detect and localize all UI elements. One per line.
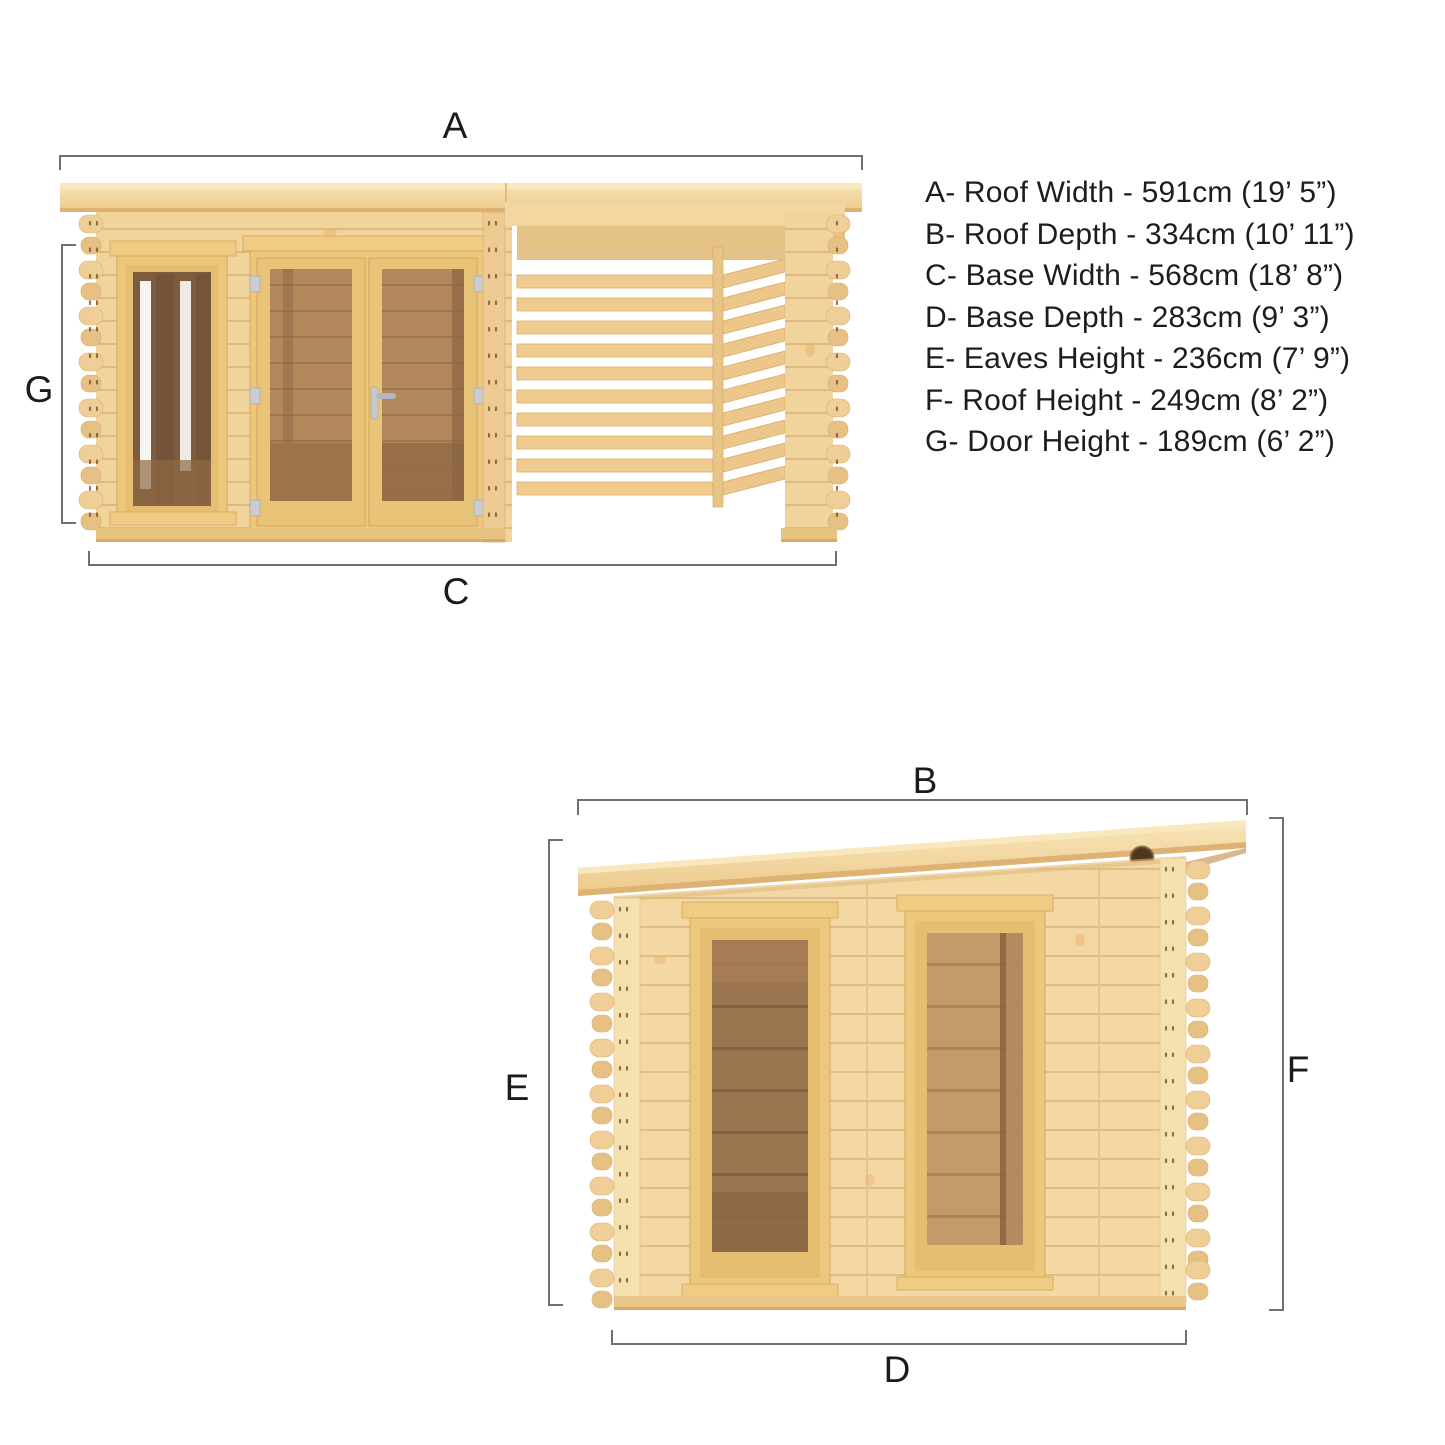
front-double-doors <box>243 236 491 533</box>
dim-line-B <box>578 800 1247 815</box>
dim-label-B: B <box>913 760 938 801</box>
front-divider-post <box>483 212 505 542</box>
dimension-diagram: A G C <box>0 0 1445 1445</box>
dim-line-A <box>60 156 862 170</box>
front-window <box>110 241 236 525</box>
legend-line-roof-depth: B- Roof Depth - 334cm (10’ 11”) <box>925 214 1355 256</box>
side-right-log-ends <box>1160 858 1210 1302</box>
dim-line-E <box>549 840 563 1305</box>
front-window-reflection <box>140 281 151 489</box>
front-window-floor-view <box>133 460 211 506</box>
side-elevation-view: B E F D <box>505 760 1310 1390</box>
front-elevation-view: A G C <box>25 105 862 612</box>
dim-label-D: D <box>884 1349 911 1390</box>
dim-label-A: A <box>443 105 468 146</box>
dim-label-G: G <box>25 369 54 410</box>
dim-label-F: F <box>1287 1049 1310 1090</box>
legend-line-base-width: C- Base Width - 568cm (18’ 8”) <box>925 255 1355 297</box>
dim-line-D <box>612 1330 1186 1344</box>
pergola-back-slats <box>517 275 713 495</box>
front-window-reflection <box>180 281 191 471</box>
side-window-1-sill <box>682 1284 838 1297</box>
dim-line-F <box>1269 818 1283 1310</box>
side-window-1 <box>682 902 838 1297</box>
side-window-2 <box>897 895 1053 1290</box>
side-window-2-header <box>897 895 1053 911</box>
dim-label-E: E <box>505 1067 530 1108</box>
side-window-1-header <box>682 902 838 918</box>
side-left-log-ends <box>590 898 640 1308</box>
legend-line-roof-height: F- Roof Height - 249cm (8’ 2”) <box>925 380 1355 422</box>
side-base <box>614 1296 1186 1310</box>
dimensions-legend: A- Roof Width - 591cm (19’ 5”) B- Roof D… <box>925 172 1355 463</box>
pergola-side-slats <box>723 259 785 495</box>
legend-line-roof-width: A- Roof Width - 591cm (19’ 5”) <box>925 172 1355 214</box>
front-door-floor-view <box>382 443 464 501</box>
dim-line-G <box>62 245 76 523</box>
dim-line-C <box>89 551 836 565</box>
legend-line-base-depth: D- Base Depth - 283cm (9’ 3”) <box>925 297 1355 339</box>
front-window-header <box>110 241 236 256</box>
front-door-header <box>243 236 491 251</box>
front-window-sill <box>110 512 236 525</box>
pergola-corner-frame <box>713 247 723 507</box>
front-pergola <box>505 202 850 542</box>
pergola-right-post <box>781 212 850 542</box>
front-door-floor-view <box>270 443 352 501</box>
side-window-2-sill <box>897 1277 1053 1290</box>
pergola-inner-beam-shadow <box>517 247 827 260</box>
dim-label-C: C <box>443 571 470 612</box>
front-roof-top-edge <box>60 183 862 189</box>
legend-line-eaves-height: E- Eaves Height - 236cm (7’ 9”) <box>925 338 1355 380</box>
front-base <box>96 528 505 542</box>
legend-line-door-height: G- Door Height - 189cm (6’ 2”) <box>925 421 1355 463</box>
